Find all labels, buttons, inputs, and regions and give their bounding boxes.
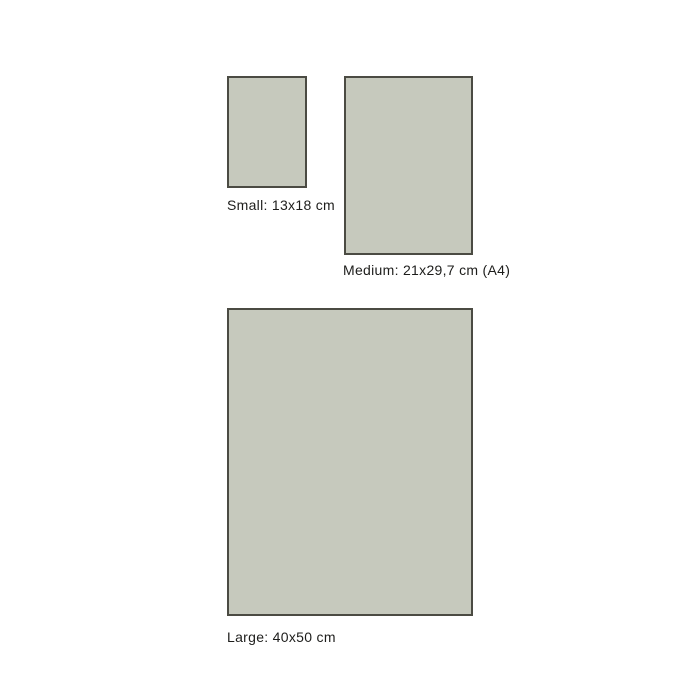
medium-size-rectangle xyxy=(344,76,473,255)
medium-size-label: Medium: 21x29,7 cm (A4) xyxy=(343,262,510,278)
large-size-label: Large: 40x50 cm xyxy=(227,629,336,645)
size-guide-diagram: Small: 13x18 cm Medium: 21x29,7 cm (A4) … xyxy=(0,0,700,700)
large-size-rectangle xyxy=(227,308,473,616)
small-size-rectangle xyxy=(227,76,307,188)
small-size-label: Small: 13x18 cm xyxy=(227,197,335,213)
